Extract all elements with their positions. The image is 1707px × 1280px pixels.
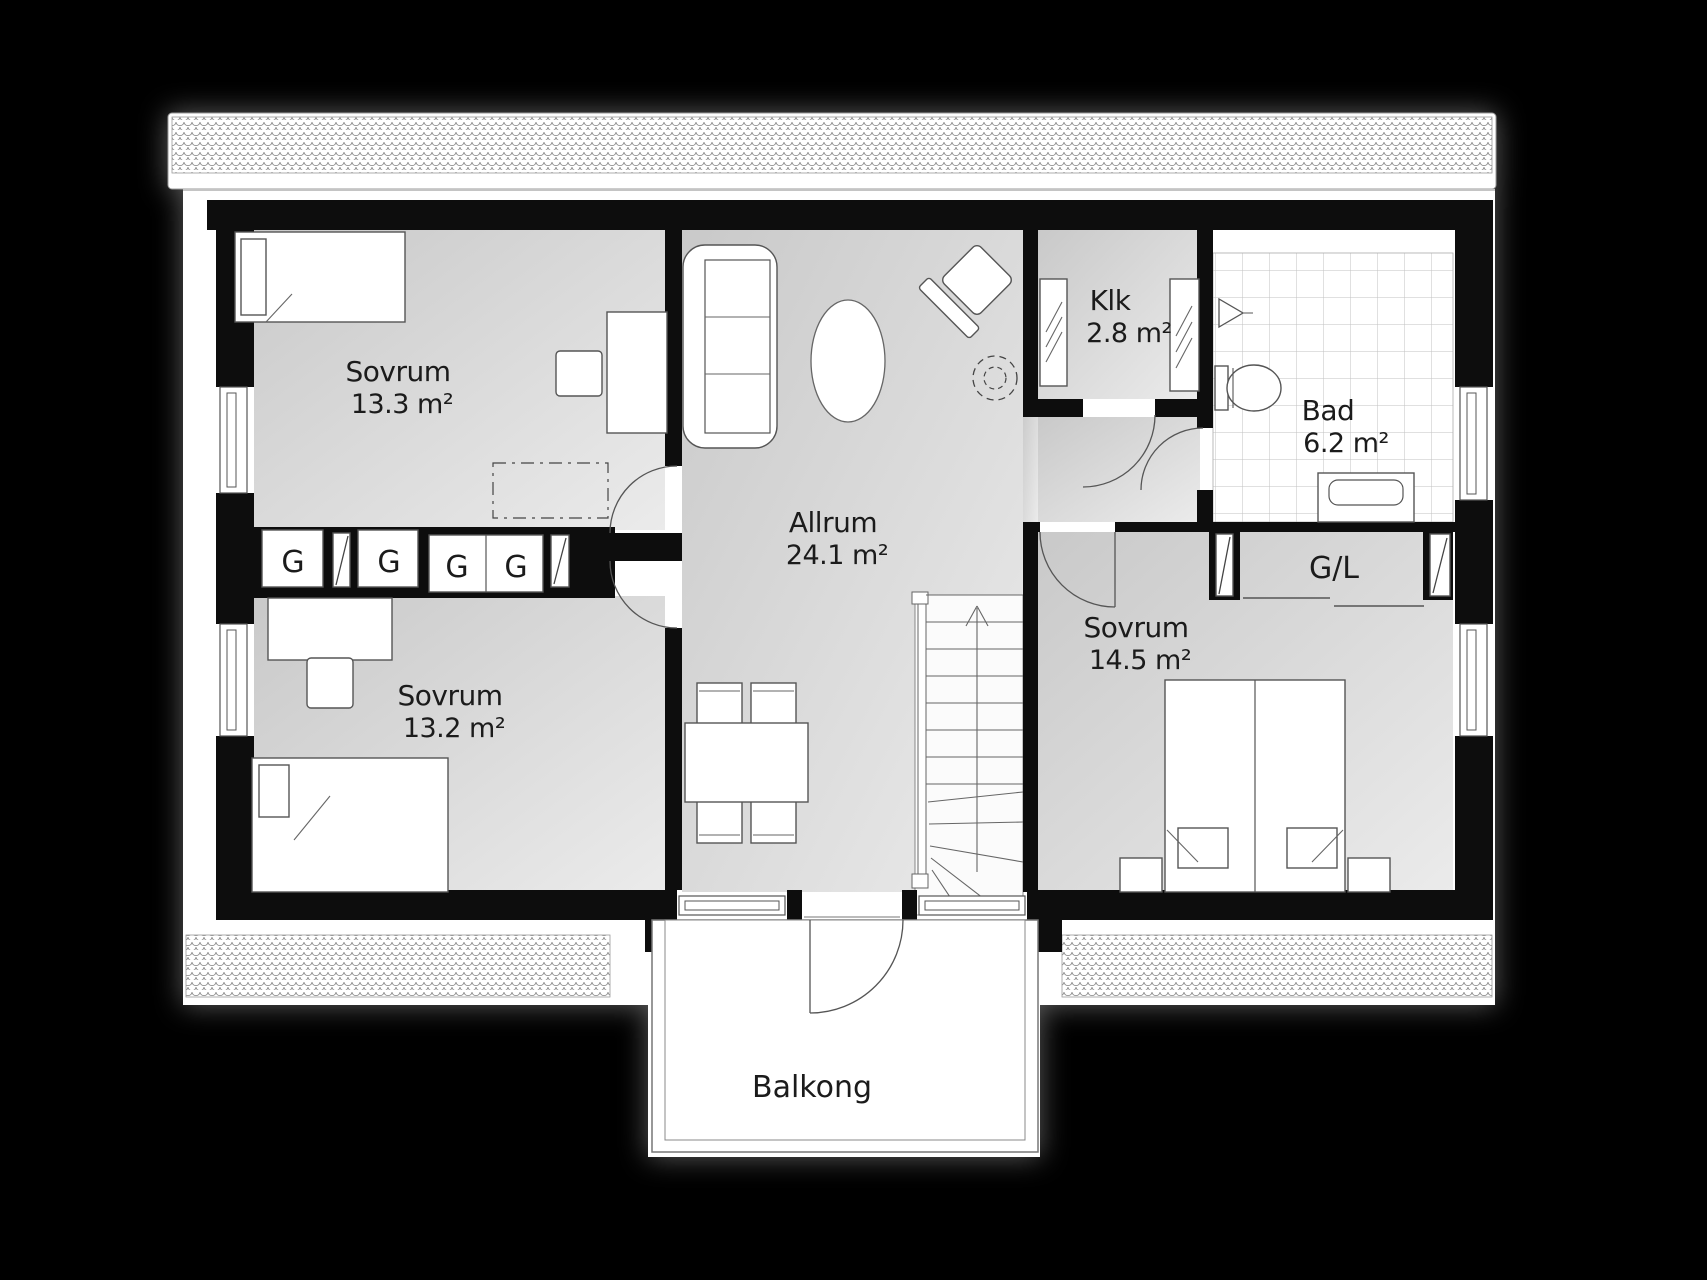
toilet-symbol (1215, 366, 1228, 410)
window (919, 896, 1025, 915)
room-label-sovrum1: Sovrum (345, 355, 450, 388)
closet-label-gl: G/L (1309, 551, 1359, 586)
room-area-sovrum2: 13.2 m² (403, 713, 505, 744)
window (220, 624, 247, 736)
room-label-allrum: Allrum (789, 506, 877, 539)
room-area-klk: 2.8 m² (1086, 318, 1172, 349)
room-label-klk: Klk (1090, 284, 1132, 317)
balcony-label: Balkong (752, 1070, 872, 1105)
room-area-sovrum3: 14.5 m² (1089, 645, 1191, 676)
dining-chair-symbol (697, 800, 742, 843)
wardrobe-label-g4: G (504, 550, 527, 585)
balcony (652, 917, 1038, 1152)
room-label-sovrum3: Sovrum (1083, 611, 1188, 644)
pillow-symbol (1178, 828, 1228, 868)
dining-chair-symbol (751, 683, 796, 725)
room-label-sovrum2: Sovrum (397, 679, 502, 712)
window (1460, 624, 1487, 736)
rug-symbol (811, 300, 885, 422)
chair-symbol (556, 351, 602, 396)
nightstand-symbol (1348, 858, 1390, 892)
desk-symbol (268, 598, 392, 660)
room-area-bad: 6.2 m² (1303, 428, 1389, 459)
staircase (912, 592, 1023, 915)
dining-table-symbol (685, 723, 808, 802)
chair-symbol (307, 658, 353, 708)
window (220, 387, 247, 493)
wardrobe-label-g3: G (445, 550, 468, 585)
room-area-allrum: 24.1 m² (786, 540, 888, 571)
desk-symbol (607, 312, 667, 433)
floorplan-drawing: Sovrum 13.3 m² Sovrum 13.2 m² Allrum 24.… (0, 0, 1707, 1280)
room-label-bad: Bad (1302, 394, 1355, 427)
nightstand-symbol (1120, 858, 1162, 892)
pillow-symbol (259, 765, 289, 817)
floorplan-canvas: Sovrum 13.3 m² Sovrum 13.2 m² Allrum 24.… (0, 0, 1707, 1280)
room-area-sovrum1: 13.3 m² (351, 389, 453, 420)
wardrobe-label-g1: G (281, 545, 304, 580)
window (1460, 387, 1487, 500)
dining-chair-symbol (751, 800, 796, 843)
window (679, 896, 785, 915)
stair-railing (918, 598, 926, 888)
wardrobe-label-g2: G (377, 545, 400, 580)
pillow-symbol (241, 239, 266, 315)
dining-chair-symbol (697, 683, 742, 725)
